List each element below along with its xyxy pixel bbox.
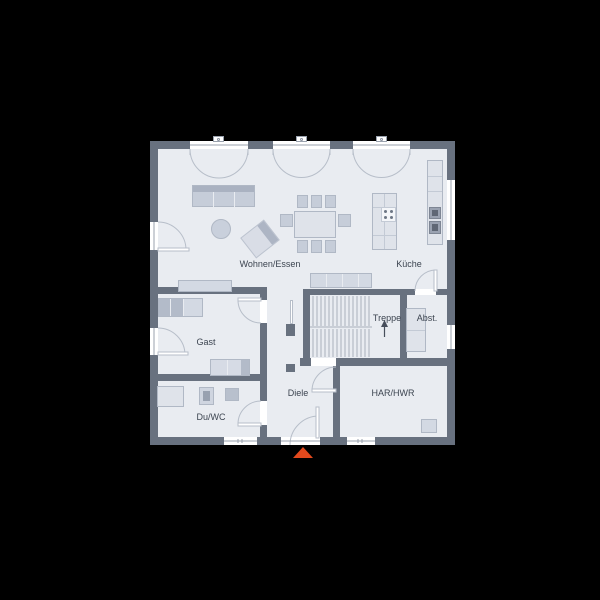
- entrance-arrow-icon: [293, 447, 313, 458]
- door-marker-icon: [296, 136, 307, 142]
- room-label-har-hwr: HAR/HWR: [372, 388, 415, 398]
- room-label-treppe: Treppe: [373, 313, 401, 323]
- room-label-kueche: Küche: [396, 259, 422, 269]
- room-label-gast: Gast: [196, 337, 215, 347]
- floor-plan-stage: Wohnen/Essen Küche Treppe Abst. Gast Die…: [0, 0, 600, 600]
- stair-treads: [310, 296, 372, 357]
- room-label-wohnen-essen: Wohnen/Essen: [240, 259, 301, 269]
- room-label-abst: Abst.: [417, 313, 438, 323]
- room-label-duwc: Du/WC: [197, 412, 226, 422]
- room-label-diele: Diele: [288, 388, 309, 398]
- french-door-arcs: [190, 149, 410, 178]
- door-marker-icon: [213, 136, 224, 142]
- door-leaf-diele: [290, 300, 293, 324]
- window-pane-lines: [154, 145, 451, 443]
- floor-plan: Wohnen/Essen Küche Treppe Abst. Gast Die…: [150, 140, 455, 445]
- door-marker-icon: [376, 136, 387, 142]
